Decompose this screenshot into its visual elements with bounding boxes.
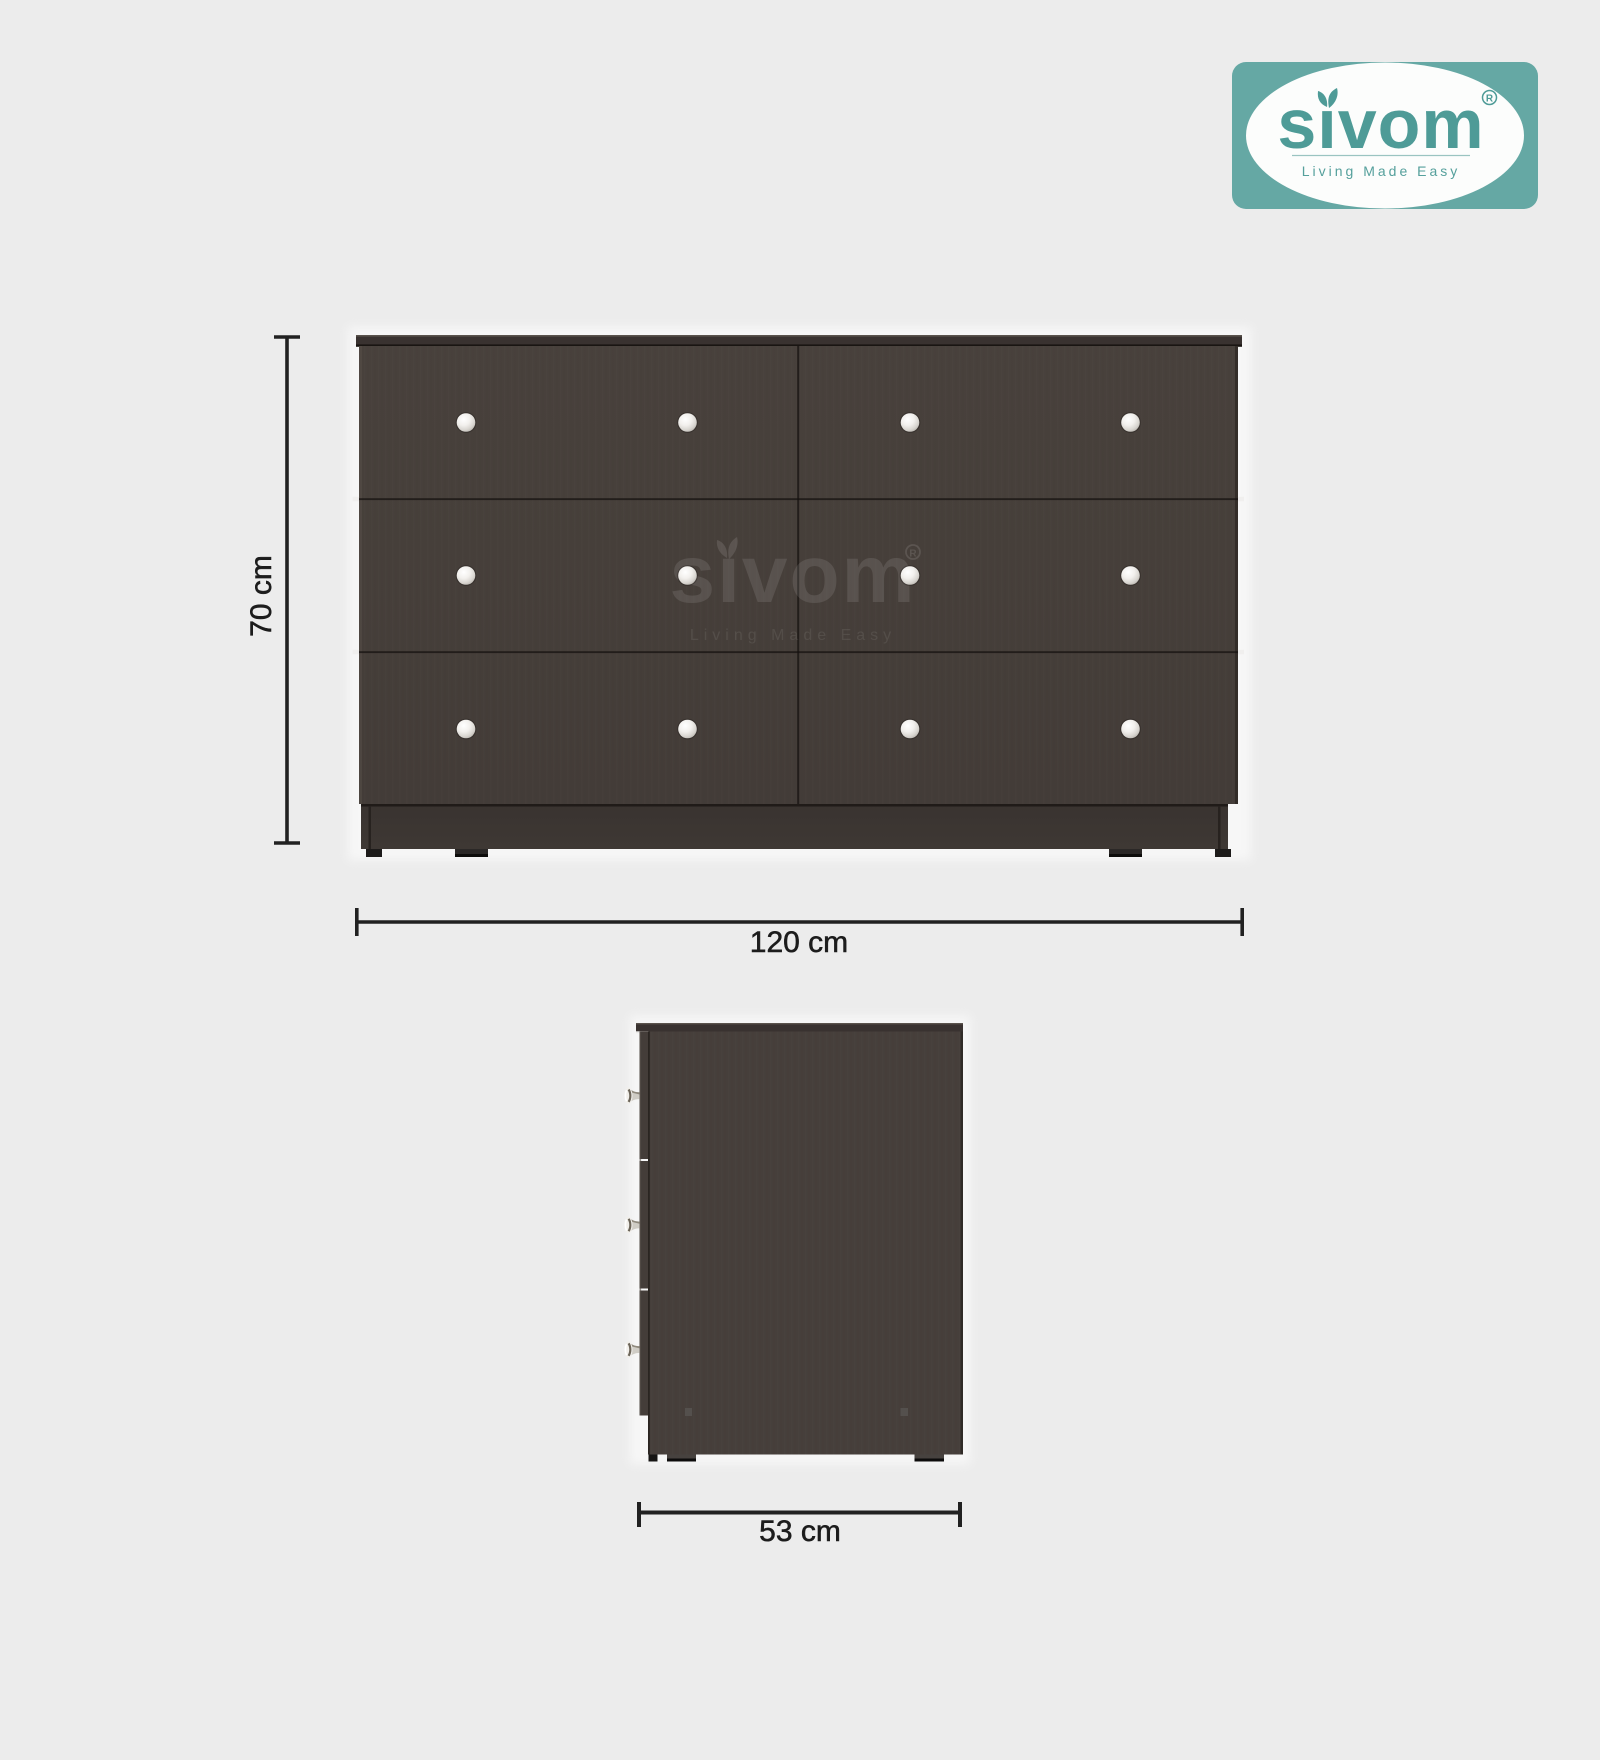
svg-text:sıvom: sıvom bbox=[1277, 85, 1484, 163]
svg-text:120 cm: 120 cm bbox=[750, 926, 848, 959]
svg-text:70 cm: 70 cm bbox=[245, 555, 278, 637]
svg-text:Living Made Easy: Living Made Easy bbox=[1302, 163, 1461, 179]
svg-text:sıvom: sıvom bbox=[670, 529, 917, 620]
svg-text:R: R bbox=[1486, 94, 1494, 105]
svg-text:Living Made Easy: Living Made Easy bbox=[690, 627, 896, 644]
svg-text:R: R bbox=[909, 549, 917, 560]
svg-text:53 cm: 53 cm bbox=[759, 1515, 841, 1548]
